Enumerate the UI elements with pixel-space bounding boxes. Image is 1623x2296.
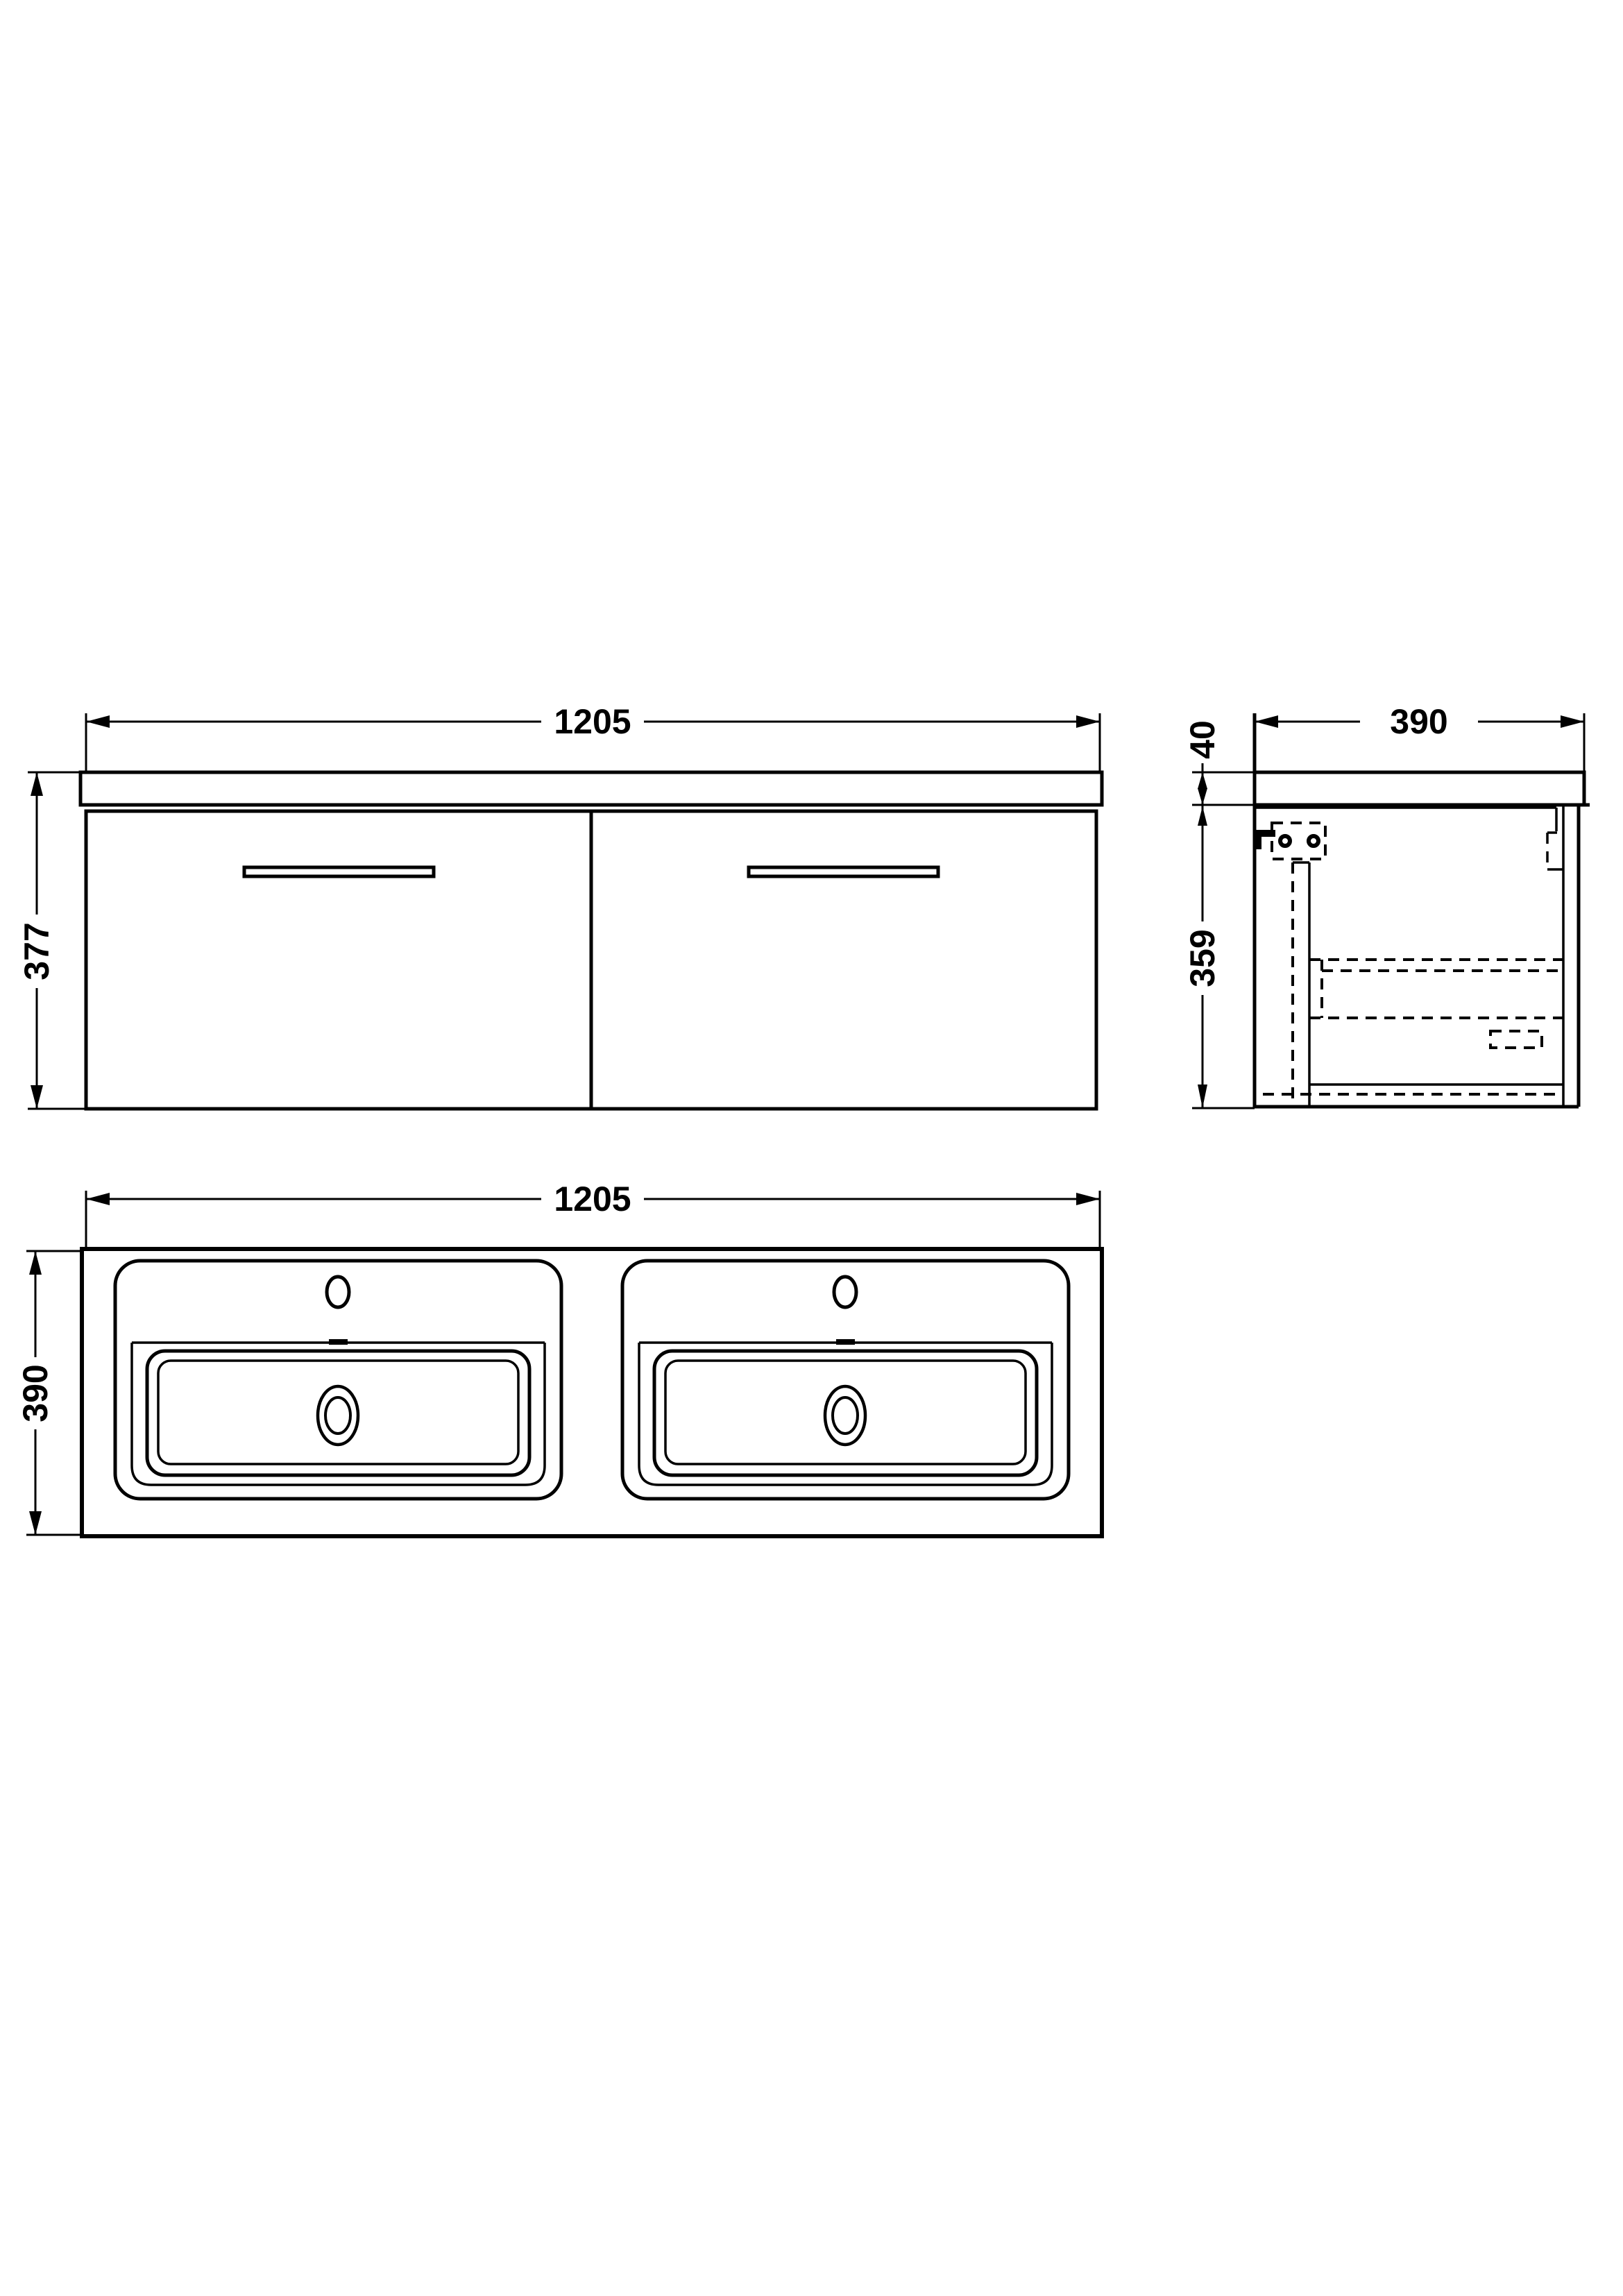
bowl-inner-rim [665, 1361, 1026, 1464]
arrowhead-left [86, 1193, 110, 1205]
overflow-slot [836, 1339, 855, 1345]
side-depth-dimension-label: 390 [1390, 702, 1447, 741]
arrowhead-down [1198, 1085, 1207, 1108]
side-section-view: 390 40 359 [1183, 702, 1590, 1108]
side-drawer-box [1263, 862, 1563, 1107]
front-height-dimension: 377 [17, 772, 86, 1109]
arrowhead-left [86, 715, 110, 728]
front-cabinet [86, 811, 1096, 1109]
arrowhead-up [29, 1251, 42, 1275]
plan-depth-dimension-label: 390 [16, 1364, 55, 1422]
side-worktop-thickness-dimension: 40 [1183, 720, 1255, 805]
front-right-drawer-handle [749, 867, 938, 876]
waste-inner-ring [325, 1397, 350, 1434]
side-worktop-thickness-label: 40 [1183, 720, 1222, 759]
vanity-technical-drawing: 1205 377 390 [0, 0, 1623, 2296]
arrowhead-up [1198, 806, 1207, 826]
side-wall-bracket [1255, 823, 1325, 859]
side-worktop [1255, 772, 1590, 805]
technical-drawing-page: 1205 377 390 [0, 0, 1623, 2296]
side-worktop-body [1255, 772, 1584, 805]
plan-width-dimension: 1205 [86, 1180, 1100, 1249]
bracket-screw-left [1280, 836, 1290, 846]
bracket-screw-right [1309, 836, 1318, 846]
waste-inner-ring [833, 1397, 858, 1434]
front-height-dimension-label: 377 [17, 922, 56, 980]
arrowhead-down [1198, 788, 1207, 805]
arrowhead-right [1076, 1193, 1100, 1205]
front-width-dimension-label: 1205 [554, 702, 631, 741]
plan-basin-unit-outline [82, 1249, 1102, 1536]
arrowhead-up [1198, 772, 1207, 789]
arrowhead-down [29, 1511, 42, 1535]
front-width-dimension: 1205 [86, 702, 1100, 772]
drawer-runner [1490, 1031, 1542, 1048]
arrowhead-down [31, 1085, 43, 1109]
front-elevation-view: 1205 377 [17, 702, 1102, 1109]
front-left-drawer-handle [244, 867, 434, 876]
side-height-dimension: 359 [1183, 805, 1255, 1108]
plan-left-basin [115, 1261, 561, 1499]
bowl-outer-rim [147, 1351, 529, 1475]
plan-depth-dimension: 390 [16, 1251, 82, 1535]
overflow-slot [329, 1339, 348, 1345]
plan-right-basin [622, 1261, 1069, 1499]
side-fixing-step-detail [1547, 808, 1563, 869]
bowl-inner-rim [158, 1361, 518, 1464]
waste-outer-ring [825, 1386, 865, 1445]
arrowhead-right [1076, 715, 1100, 728]
tap-hole [834, 1277, 856, 1307]
side-depth-dimension: 390 [1255, 702, 1584, 772]
plan-basin-view: 1205 390 [16, 1180, 1102, 1536]
tap-hole [327, 1277, 349, 1307]
bowl-outer-rim [654, 1351, 1037, 1475]
plan-width-dimension-label: 1205 [554, 1180, 631, 1218]
arrowhead-right [1561, 715, 1584, 728]
waste-outer-ring [318, 1386, 358, 1445]
side-height-dimension-label: 359 [1183, 929, 1222, 987]
arrowhead-left [1255, 715, 1278, 728]
front-worktop [80, 772, 1102, 805]
arrowhead-up [31, 772, 43, 796]
